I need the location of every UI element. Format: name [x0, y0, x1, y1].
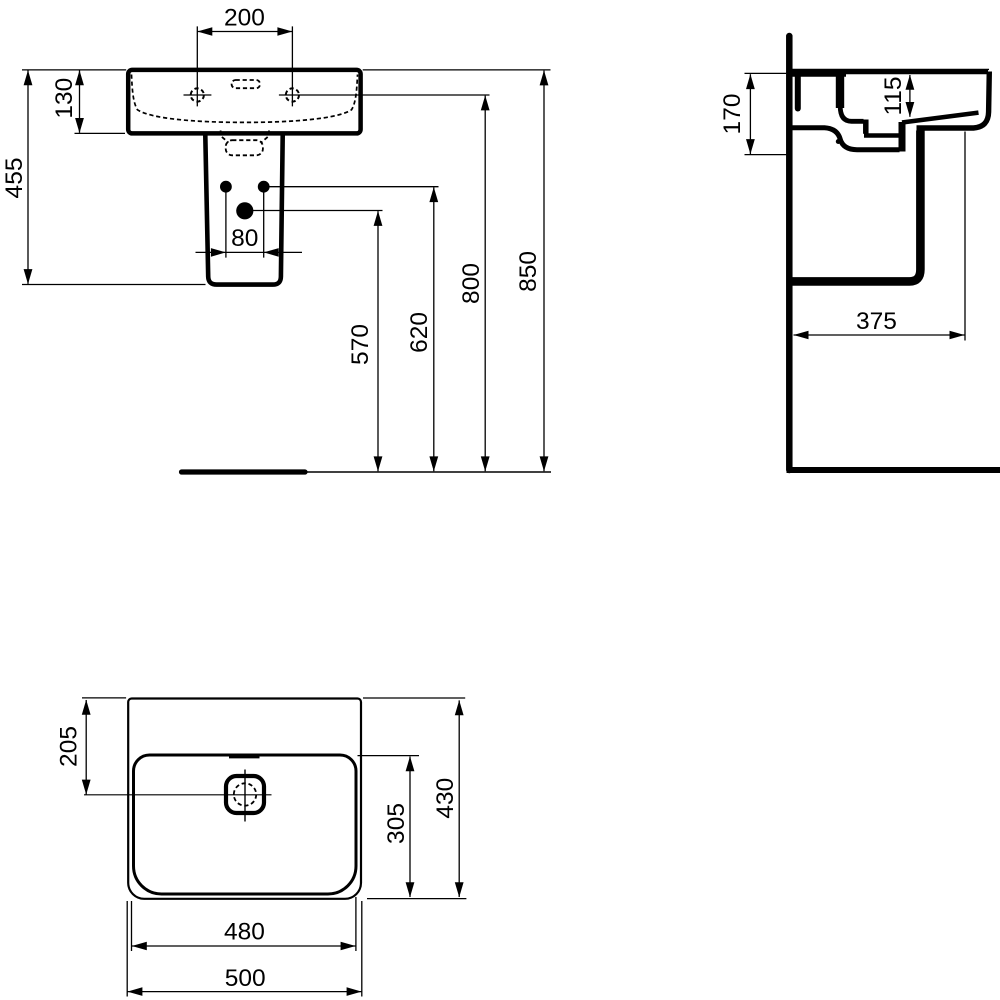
- svg-text:170: 170: [719, 94, 746, 135]
- svg-text:205: 205: [55, 726, 82, 767]
- svg-text:80: 80: [231, 225, 258, 252]
- svg-text:305: 305: [383, 803, 410, 844]
- svg-text:800: 800: [458, 263, 485, 304]
- svg-text:480: 480: [224, 918, 265, 945]
- svg-text:620: 620: [406, 312, 433, 353]
- svg-text:430: 430: [432, 778, 459, 819]
- svg-text:500: 500: [225, 965, 266, 992]
- svg-text:570: 570: [347, 324, 374, 365]
- svg-text:850: 850: [515, 251, 542, 292]
- svg-text:455: 455: [1, 158, 28, 199]
- svg-text:200: 200: [224, 5, 265, 32]
- svg-text:375: 375: [856, 308, 897, 335]
- svg-text:130: 130: [51, 78, 78, 119]
- svg-text:115: 115: [880, 76, 907, 115]
